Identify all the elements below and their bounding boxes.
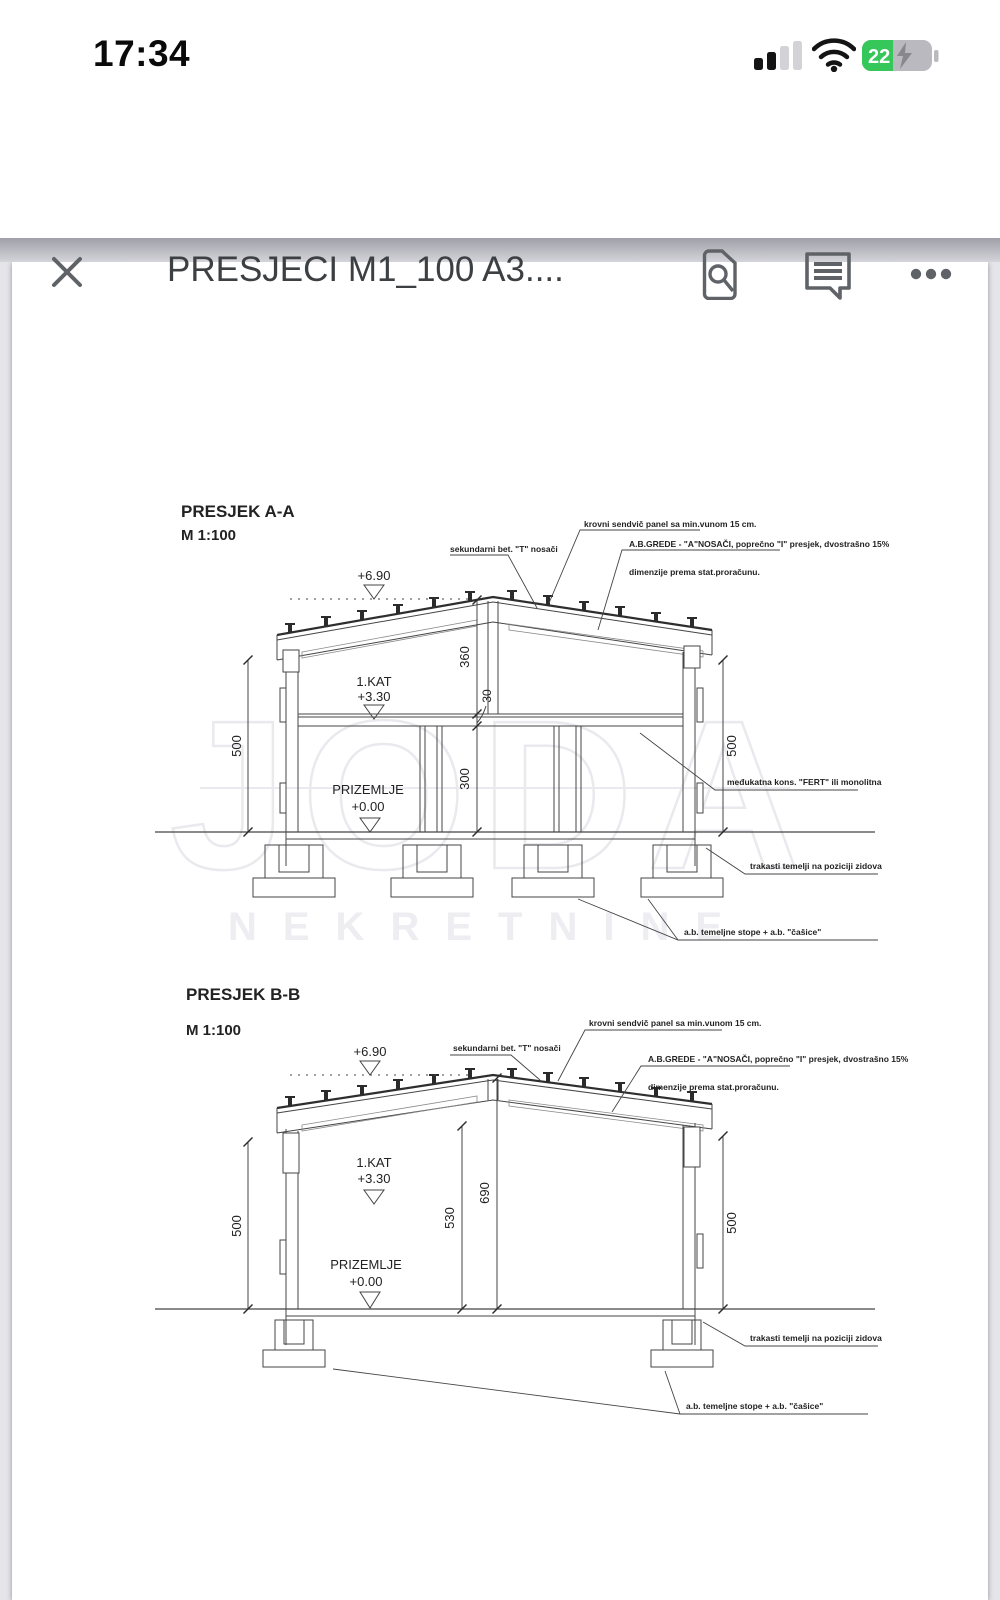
level-floor1: +3.30 (358, 689, 391, 704)
note-strip-foundations: trakasti temelji na poziciji zidova (750, 1333, 882, 1343)
note-secondary-beams: sekundarni bet. "T" nosači (453, 1043, 561, 1053)
watermark-subtitle: NEKRETNINE (228, 905, 748, 949)
section-a-title: PRESJEK A-A (181, 502, 295, 521)
note-strip-foundations: trakasti temelji na poziciji zidova (750, 861, 882, 871)
dim-slab: 30 (480, 689, 494, 703)
clock: 17:34 (93, 33, 190, 75)
note-footings: a.b. temeljne stope + a.b. "čašice" (686, 1401, 823, 1411)
level-floor1-name: 1.KAT (356, 674, 391, 689)
status-bar: 17:34 22 (0, 0, 1000, 100)
dim-left: 500 (229, 735, 244, 757)
dim-right: 500 (724, 1212, 739, 1234)
section-b-title: PRESJEK B-B (186, 985, 300, 1004)
battery-icon: 22 (862, 40, 942, 72)
dim-left: 500 (229, 1215, 244, 1237)
note-secondary-beams: sekundarni bet. "T" nosači (450, 544, 558, 554)
close-icon[interactable] (48, 253, 86, 291)
comments-icon[interactable] (803, 250, 853, 300)
dim-ground-floor: 300 (457, 768, 472, 790)
note-footings: a.b. temeljne stope + a.b. "čašice" (684, 927, 821, 937)
section-b-scale: M 1:100 (186, 1022, 241, 1039)
more-options-icon[interactable] (908, 266, 956, 282)
note-roof-panel: krovni sendvič panel sa min.vunom 15 cm. (584, 519, 756, 529)
level-floor1: +3.30 (358, 1171, 391, 1186)
section-b: PRESJEK B-B M 1:100 (155, 985, 909, 1414)
document-title: PRESJECI M1_100 A3.... (167, 250, 637, 290)
note-floor-slab: međukatna kons. "FERT" ili monolitna (727, 777, 882, 787)
dim-right: 500 (724, 735, 739, 757)
section-b-dimensions: 500 500 530 690 (229, 1074, 739, 1314)
note-ab-beams-2: dimenzije prema stat.proračunu. (648, 1082, 779, 1092)
cellular-signal-icon (754, 40, 804, 72)
wifi-icon (812, 38, 856, 72)
find-in-document-icon[interactable] (700, 248, 740, 300)
level-roof: +6.90 (358, 568, 391, 583)
watermark-text: JODA (169, 676, 814, 913)
note-ab-beams: A.B.GREDE - "A"NOSAČI, poprečno "I" pres… (648, 1053, 909, 1064)
dim-wall: 530 (442, 1207, 457, 1229)
note-ab-beams: A.B.GREDE - "A"NOSAČI, poprečno "I" pres… (629, 538, 890, 549)
section-b-roof (277, 1069, 712, 1133)
level-ground: +0.00 (350, 1274, 383, 1289)
battery-percent: 22 (868, 46, 890, 68)
level-ground: +0.00 (352, 799, 385, 814)
section-b-columns (280, 1123, 703, 1345)
note-roof-panel: krovni sendvič panel sa min.vunom 15 cm. (589, 1018, 761, 1028)
pdf-viewer-screen: { "status_bar": { "time": "17:34", "batt… (0, 0, 1000, 1600)
level-ground-name: PRIZEMLJE (332, 782, 404, 797)
dim-roof: 360 (457, 646, 472, 668)
note-ab-beams-2: dimenzije prema stat.proračunu. (629, 567, 760, 577)
architectural-drawing: JODA NEKRETNINE PRESJEK A-A M 1:100 (0, 0, 1000, 1600)
section-a-scale: M 1:100 (181, 527, 236, 544)
level-roof: +6.90 (354, 1044, 387, 1059)
dim-ridge: 690 (477, 1182, 492, 1204)
level-floor1-name: 1.KAT (356, 1155, 391, 1170)
section-b-annotations: sekundarni bet. "T" nosači krovni sendvi… (333, 1018, 909, 1414)
viewer-header: PRESJECI M1_100 A3.... (0, 100, 1000, 238)
level-ground-name: PRIZEMLJE (330, 1257, 402, 1272)
